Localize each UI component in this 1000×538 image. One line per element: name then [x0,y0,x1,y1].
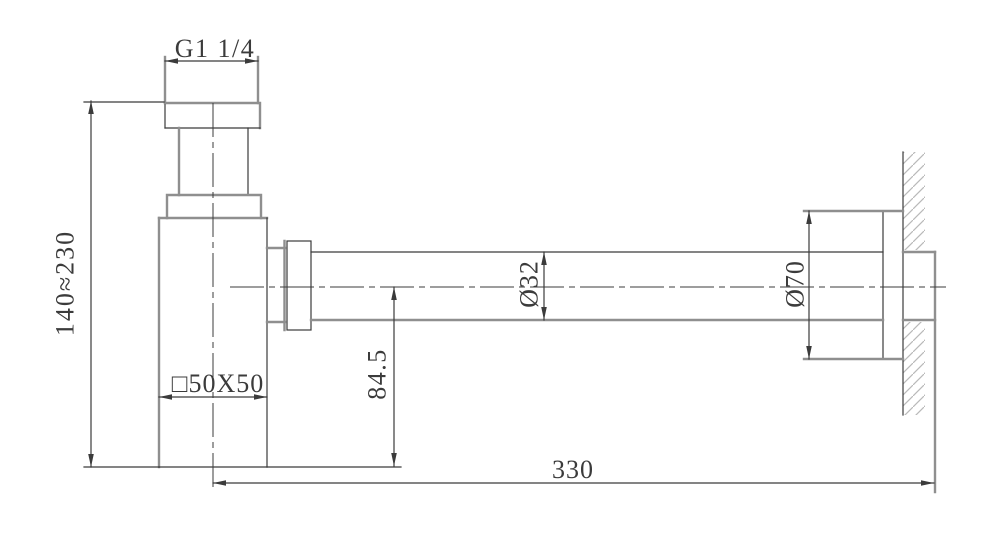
label-body-section: □50X50 [172,369,264,398]
dim-wall-distance: 330 [213,455,934,486]
label-adjustable-height: 140≈230 [51,230,80,336]
technical-drawing-canvas: G1 1/4 140≈230 □50X50 84.5 Ø32 Ø70 [0,0,1000,538]
dim-height: 140≈230 [51,101,165,467]
label-outlet-drop: 84.5 [363,348,392,400]
label-escutcheon-diameter: Ø70 [781,260,810,308]
centerlines [213,103,946,492]
label-wall-distance: 330 [552,455,594,484]
slip-nut [287,241,311,330]
dim-pipe-diameter: Ø32 [515,252,547,320]
label-pipe-diameter: Ø32 [515,260,544,308]
dim-thread: G1 1/4 [165,34,258,103]
pipe-through-wall-opening [900,250,937,322]
wall-hatch [900,152,937,415]
body-collar [167,195,261,218]
dim-body-section: □50X50 [159,369,267,400]
wall-flange [804,211,903,359]
dim-escutcheon-diameter: Ø70 [781,211,812,359]
label-thread-size: G1 1/4 [175,34,256,63]
outlet-stub [267,241,285,330]
